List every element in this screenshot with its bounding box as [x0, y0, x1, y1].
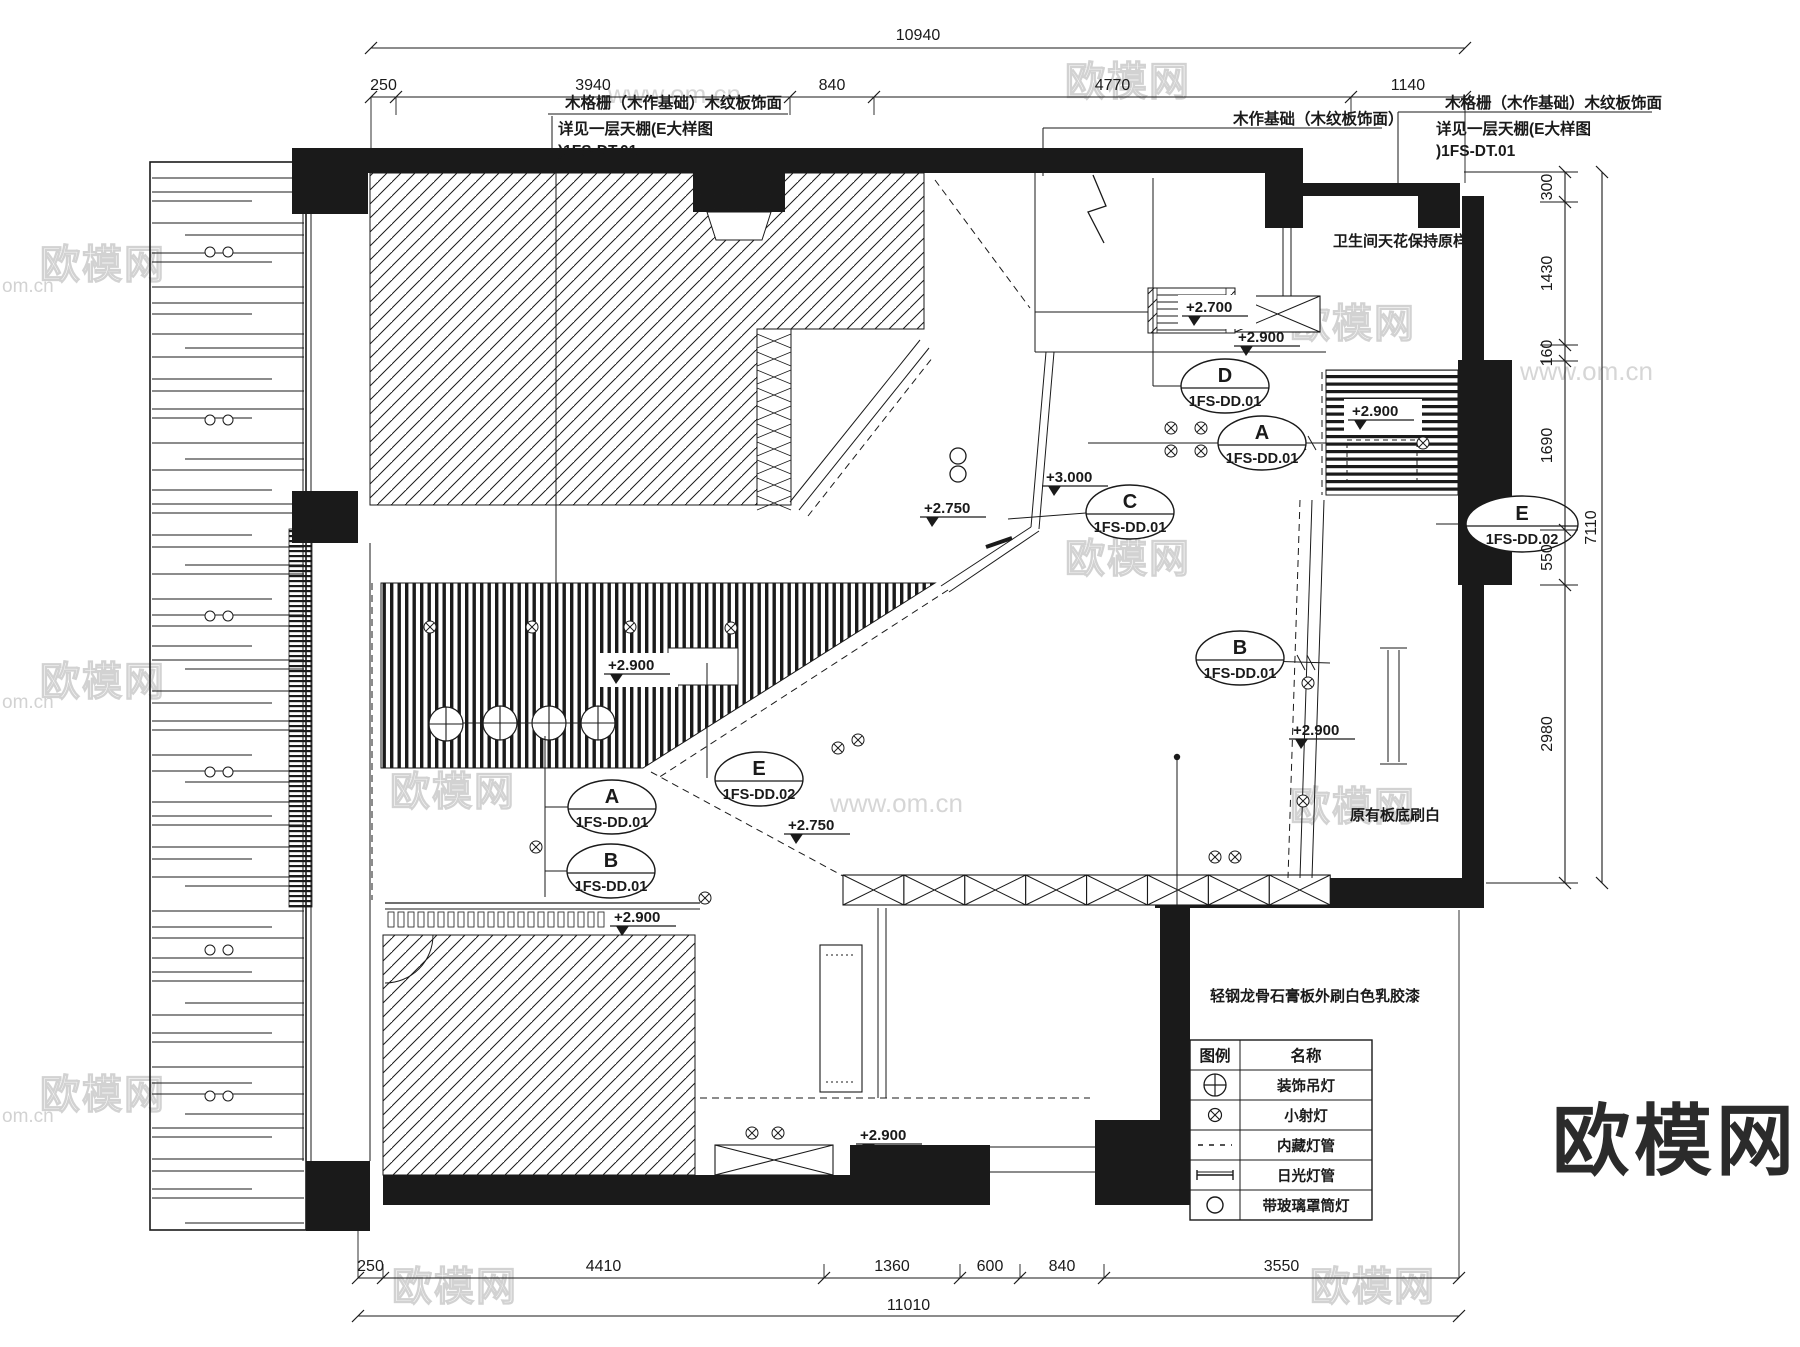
- legend-table: 图例名称装饰吊灯小射灯内藏灯管日光灯管带玻璃罩筒灯: [1190, 1040, 1372, 1220]
- comb-strip-tooth: [388, 912, 394, 927]
- comb-strip-tooth: [518, 912, 524, 927]
- elevation-value: +2.750: [924, 500, 970, 517]
- oval-code: 1FS-DD.01: [1226, 451, 1299, 467]
- comb-strip-tooth: [488, 912, 494, 927]
- spotlight-symbol: [746, 1127, 758, 1139]
- spotlight-symbol: [624, 621, 636, 633]
- site-logo: 欧模网: [1552, 1097, 1798, 1185]
- exterior-window-strip: [150, 162, 306, 1230]
- hidden-dashed-line: [808, 357, 933, 516]
- comb-strip-tooth: [398, 912, 404, 927]
- elevation-flag: [1295, 739, 1308, 749]
- wall-segment: [1265, 148, 1303, 228]
- annotation-left-line3: )1FS-DT.01: [558, 143, 638, 160]
- break-line-zigzag: [1088, 175, 1106, 243]
- detail-callout-oval: D1FS-DD.01: [1181, 359, 1269, 413]
- oval-code: 1FS-DD.01: [1094, 520, 1167, 536]
- glass-downlight-icon: [1207, 1197, 1223, 1213]
- construction-line: [941, 527, 1031, 586]
- elevation-marker: +2.900: [610, 909, 676, 936]
- legend-row-name: 小射灯: [1284, 1107, 1328, 1125]
- oval-letter: E: [1515, 503, 1528, 525]
- oval-code: 1FS-DD.01: [575, 879, 648, 895]
- annotation-slab: 原有板底刷白: [1350, 806, 1440, 824]
- oval-code: 1FS-DD.01: [1204, 666, 1277, 682]
- wall-segment: [850, 1145, 990, 1205]
- dim-bottom-segment: 840: [1049, 1258, 1076, 1275]
- leader-dot: [1174, 754, 1180, 760]
- ceiling-x-band-box: [1269, 875, 1330, 905]
- comb-strip-tooth: [478, 912, 484, 927]
- wall-segment: [1418, 196, 1460, 228]
- comb-strip-tooth: [578, 912, 584, 927]
- comb-strip-tooth: [438, 912, 444, 927]
- spotlight-symbol: [1417, 437, 1429, 449]
- elevation-marker: +2.750: [784, 817, 850, 844]
- dim-right-segment: 1430: [1539, 256, 1556, 292]
- elevation-marker: +3.000: [1042, 469, 1108, 496]
- watermark-site-short: om.cn: [2, 276, 54, 297]
- construction-line: [1039, 352, 1054, 529]
- wall-segment: [306, 1161, 370, 1231]
- legend-row-name: 带玻璃罩筒灯: [1263, 1197, 1350, 1215]
- ceiling-x-band-box: [1208, 875, 1269, 905]
- oval-letter: B: [1233, 637, 1247, 659]
- elevation-value: +2.900: [860, 1127, 906, 1144]
- elevation-marker: +2.900: [1344, 399, 1422, 433]
- spotlight-icon: [1209, 1109, 1222, 1122]
- window-detail-circle: [205, 247, 215, 257]
- detail-callout-oval: B1FS-DD.01: [567, 844, 655, 898]
- oval-letter: C: [1123, 491, 1137, 513]
- window-detail-circle: [223, 1091, 233, 1101]
- oval-letter: A: [605, 786, 619, 808]
- watermark-brand: 欧模网: [392, 1265, 518, 1309]
- oval-letter: D: [1218, 365, 1232, 387]
- annotation-right-line1: 木格栅（木作基础）木纹板饰面: [1444, 93, 1662, 112]
- elevation-value: +2.700: [1186, 299, 1232, 316]
- spotlight-symbol: [1229, 851, 1241, 863]
- spotlight-symbol: [1297, 795, 1309, 807]
- dim-right-segment: 1690: [1539, 428, 1556, 464]
- window-detail-circle: [223, 415, 233, 425]
- chandelier-symbol: [532, 706, 566, 740]
- window-detail-circle: [223, 247, 233, 257]
- construction-line: [1031, 352, 1046, 527]
- legend-row-name: 日光灯管: [1277, 1167, 1335, 1185]
- glass-downlight-symbol: [950, 466, 966, 482]
- construction-line: [799, 348, 929, 510]
- spotlight-symbol: [852, 734, 864, 746]
- oval-code: 1FS-DD.01: [1189, 394, 1262, 410]
- comb-strip-tooth: [548, 912, 554, 927]
- elevation-value: +2.900: [1293, 722, 1339, 739]
- dim-bottom-segment: 600: [977, 1258, 1004, 1275]
- detail-callout-oval: A1FS-DD.01: [568, 780, 656, 834]
- ceiling-x-band-box: [1148, 875, 1209, 905]
- dim-top-segment: 3940: [575, 77, 611, 94]
- spotlight-symbol: [1165, 445, 1177, 457]
- watermark-brand: 欧模网: [1310, 1265, 1436, 1309]
- dim-bottom-segment: 1360: [874, 1258, 910, 1275]
- chandelier-symbol: [483, 706, 517, 740]
- watermark-site-short: om.cn: [2, 692, 54, 713]
- elevation-marker: +2.700: [1178, 295, 1256, 329]
- oval-letter: A: [1255, 422, 1269, 444]
- wall-segment: [383, 1175, 850, 1205]
- detail-callout-oval: E1FS-DD.02: [1466, 496, 1578, 552]
- window-detail-circle: [205, 767, 215, 777]
- elevation-flag: [790, 834, 803, 844]
- dim-top-segment: 840: [819, 77, 846, 94]
- spotlight-symbol: [832, 742, 844, 754]
- detail-callout-oval: C1FS-DD.01: [1086, 485, 1174, 539]
- spotlight-symbol: [1209, 851, 1221, 863]
- elevation-value: +2.900: [614, 909, 660, 926]
- comb-strip-tooth: [448, 912, 454, 927]
- construction-line: [1008, 513, 1086, 519]
- comb-strip-tooth: [418, 912, 424, 927]
- floor-plan-svg: 欧模网欧模网欧模网欧模网欧模网欧模网欧模网欧模网欧模网欧模网www.om.cnw…: [0, 0, 1800, 1347]
- spotlight-symbol: [424, 621, 436, 633]
- dim-top-segment: 1140: [1391, 77, 1426, 94]
- legend-row-name: 装饰吊灯: [1276, 1077, 1335, 1095]
- elevation-marker: +2.900: [1289, 722, 1355, 749]
- elevation-flag: [1048, 486, 1061, 496]
- wood-panel-ceiling-zone: [370, 173, 924, 505]
- watermark-brand: 欧模网: [40, 243, 166, 287]
- watermark-brand: 欧模网: [40, 660, 166, 704]
- comb-strip-tooth: [498, 912, 504, 927]
- ceiling-x-band-box: [843, 875, 904, 905]
- dim-bottom-segment: 4410: [586, 1258, 622, 1275]
- wall-segment: [1095, 1120, 1198, 1205]
- annotation-right-line2: 详见一层天棚(E大样图: [1436, 119, 1591, 138]
- chandelier-icon: [1204, 1074, 1226, 1096]
- chandelier-symbol: [581, 706, 615, 740]
- dim-bottom-total: 11010: [887, 1297, 930, 1314]
- bottom-x-box: [715, 1145, 833, 1175]
- legend-row-name: 内藏灯管: [1277, 1137, 1335, 1155]
- wood-panel-ceiling-zone-lower: [383, 935, 695, 1175]
- ceiling-x-band-box: [965, 875, 1026, 905]
- annotation-right-line3: )1FS-DT.01: [1436, 143, 1516, 160]
- elevation-value: +2.750: [788, 817, 834, 834]
- comb-strip-tooth: [468, 912, 474, 927]
- spotlight-symbol: [530, 841, 542, 853]
- construction-line: [949, 531, 1039, 592]
- annotation-left-line1: 木格栅（木作基础）木纹板饰面: [564, 93, 782, 112]
- window-detail-circle: [205, 945, 215, 955]
- spotlight-symbol: [1195, 422, 1207, 434]
- dim-right-segment: 300: [1539, 174, 1556, 201]
- detail-callout-oval: A1FS-DD.01: [1218, 416, 1306, 470]
- ceiling-x-band-box: [1087, 875, 1148, 905]
- dim-right-total: 7110: [1583, 510, 1600, 545]
- fluorescent-box: [820, 945, 862, 1092]
- spotlight-symbol: [699, 892, 711, 904]
- spotlight-symbol: [725, 622, 737, 634]
- comb-strip-tooth: [558, 912, 564, 927]
- oval-letter: B: [604, 850, 618, 872]
- comb-strip-tooth: [508, 912, 514, 927]
- comb-strip-tooth: [458, 912, 464, 927]
- dim-right-segment: 550: [1539, 544, 1556, 571]
- dim-top-segment: 4770: [1095, 77, 1131, 94]
- annotation-left-line2: 详见一层天棚(E大样图: [558, 119, 713, 138]
- elevation-marker: +2.750: [920, 500, 986, 527]
- window-detail-circle: [205, 415, 215, 425]
- elevation-value: +2.900: [1238, 329, 1284, 346]
- ceiling-trapezoid-detail: [707, 212, 771, 240]
- comb-strip-tooth: [408, 912, 414, 927]
- annotation-middle: 木作基础（木纹板饰面）: [1232, 109, 1404, 128]
- annotation-bathroom: 卫生间天花保持原样: [1333, 232, 1468, 250]
- comb-strip-tooth: [568, 912, 574, 927]
- elevation-flag: [1240, 346, 1253, 356]
- window-detail-circle: [223, 611, 233, 621]
- spotlight-symbol: [1165, 422, 1177, 434]
- wall-poche-strip: [289, 529, 312, 907]
- elevation-value: +2.900: [1352, 403, 1398, 420]
- elevation-value: +2.900: [608, 657, 654, 674]
- comb-strip-tooth: [528, 912, 534, 927]
- annotation-gypsum: 轻钢龙骨石膏板外刷白色乳胶漆: [1210, 987, 1420, 1005]
- construction-line: [790, 340, 920, 502]
- comb-strip-tooth: [538, 912, 544, 927]
- watermark-brand: 欧模网: [40, 1073, 166, 1117]
- oval-letter: E: [752, 758, 765, 780]
- hidden-dashed-line: [935, 180, 1030, 308]
- oval-code: 1FS-DD.01: [576, 815, 649, 831]
- spotlight-symbol: [526, 621, 538, 633]
- oval-code: 1FS-DD.02: [723, 787, 796, 803]
- watermark-brand: 欧模网: [390, 770, 516, 814]
- ceiling-x-band-box: [904, 875, 965, 905]
- window-detail-circle: [205, 1091, 215, 1101]
- elevation-value: +3.000: [1046, 469, 1092, 486]
- spotlight-symbol: [772, 1127, 784, 1139]
- cross-strip: [757, 329, 791, 505]
- elevation-flag: [926, 517, 939, 527]
- comb-strip-tooth: [588, 912, 594, 927]
- comb-strip-tooth: [598, 912, 604, 927]
- elevation-marker: +2.900: [600, 653, 678, 687]
- legend-downlight: [1207, 1197, 1223, 1213]
- wall-segment: [1303, 183, 1460, 196]
- window-strip-frame: [150, 162, 306, 1230]
- detail-callout-oval: B1FS-DD.01: [1196, 631, 1284, 685]
- watermark-site: www.om.cn: [829, 788, 963, 818]
- watermark-brand: 欧模网: [1065, 537, 1191, 581]
- comb-strip-tooth: [428, 912, 434, 927]
- legend-header-symbol: 图例: [1199, 1046, 1230, 1065]
- detail-callout-oval: E1FS-DD.02: [715, 752, 803, 806]
- window-detail-circle: [205, 611, 215, 621]
- window-detail-circle: [223, 945, 233, 955]
- wall-segment: [1160, 908, 1190, 1120]
- dim-bottom-segment: 3550: [1264, 1258, 1300, 1275]
- cad-ceiling-plan: 欧模网欧模网欧模网欧模网欧模网欧模网欧模网欧模网欧模网欧模网www.om.cnw…: [0, 0, 1800, 1347]
- glass-downlight-symbol: [950, 448, 966, 464]
- chandelier-symbol: [429, 707, 463, 741]
- dim-right-segment: 160: [1539, 340, 1556, 367]
- dim-top-segment: 250: [370, 77, 397, 94]
- spotlight-symbol: [1302, 677, 1314, 689]
- ceiling-x-band-box: [1026, 875, 1087, 905]
- legend-header-name: 名称: [1290, 1046, 1322, 1065]
- spotlight-symbol: [1195, 445, 1207, 457]
- window-detail-circle: [223, 767, 233, 777]
- grille-light-box: [668, 648, 738, 685]
- dim-right-segment: 2980: [1539, 716, 1556, 752]
- watermark-site-short: om.cn: [2, 1106, 54, 1127]
- wall-segment: [306, 148, 1303, 173]
- dim-bottom-segment: 250: [357, 1258, 384, 1275]
- dim-top-total: 10940: [896, 27, 941, 44]
